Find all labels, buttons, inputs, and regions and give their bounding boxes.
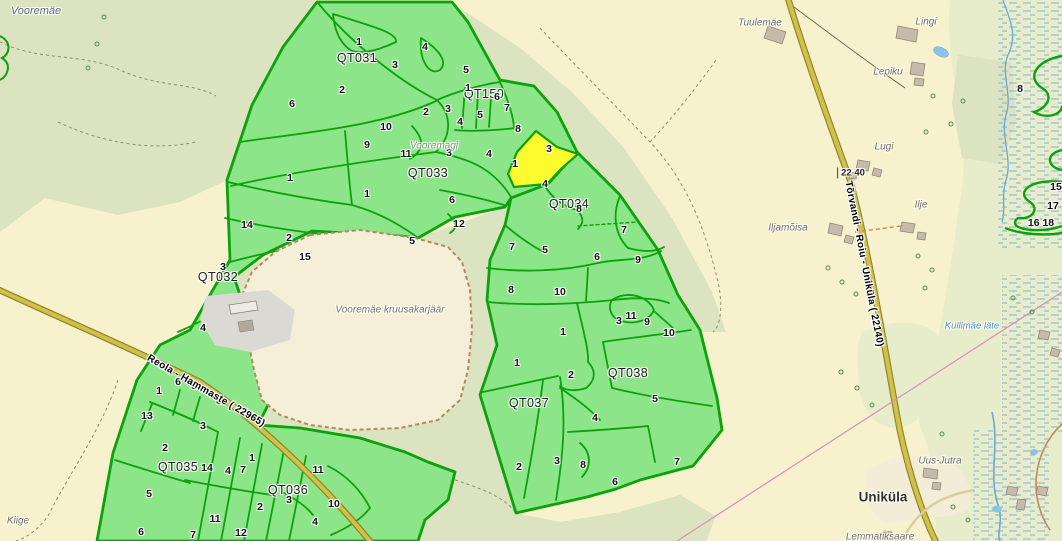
building (910, 62, 925, 76)
building (923, 468, 938, 479)
building (1036, 486, 1048, 496)
building (844, 235, 854, 244)
building (1006, 486, 1018, 496)
building (1016, 499, 1026, 510)
building (872, 168, 882, 177)
building (914, 78, 924, 86)
building (1050, 348, 1060, 357)
marsh-area (973, 428, 1049, 541)
quarry-shed (238, 320, 254, 332)
building (856, 160, 870, 171)
building (883, 531, 892, 540)
pond (1030, 449, 1038, 455)
marsh-area (998, 0, 1062, 250)
forestry-map-canvas[interactable]: QT031QT150QT033QT032QT034QT035QT036QT037… (0, 0, 1062, 541)
map-svg (0, 0, 1062, 541)
building (849, 172, 857, 179)
pond (992, 506, 1002, 513)
building (917, 232, 926, 240)
building (1038, 330, 1050, 340)
building (900, 222, 915, 233)
building (932, 482, 941, 490)
